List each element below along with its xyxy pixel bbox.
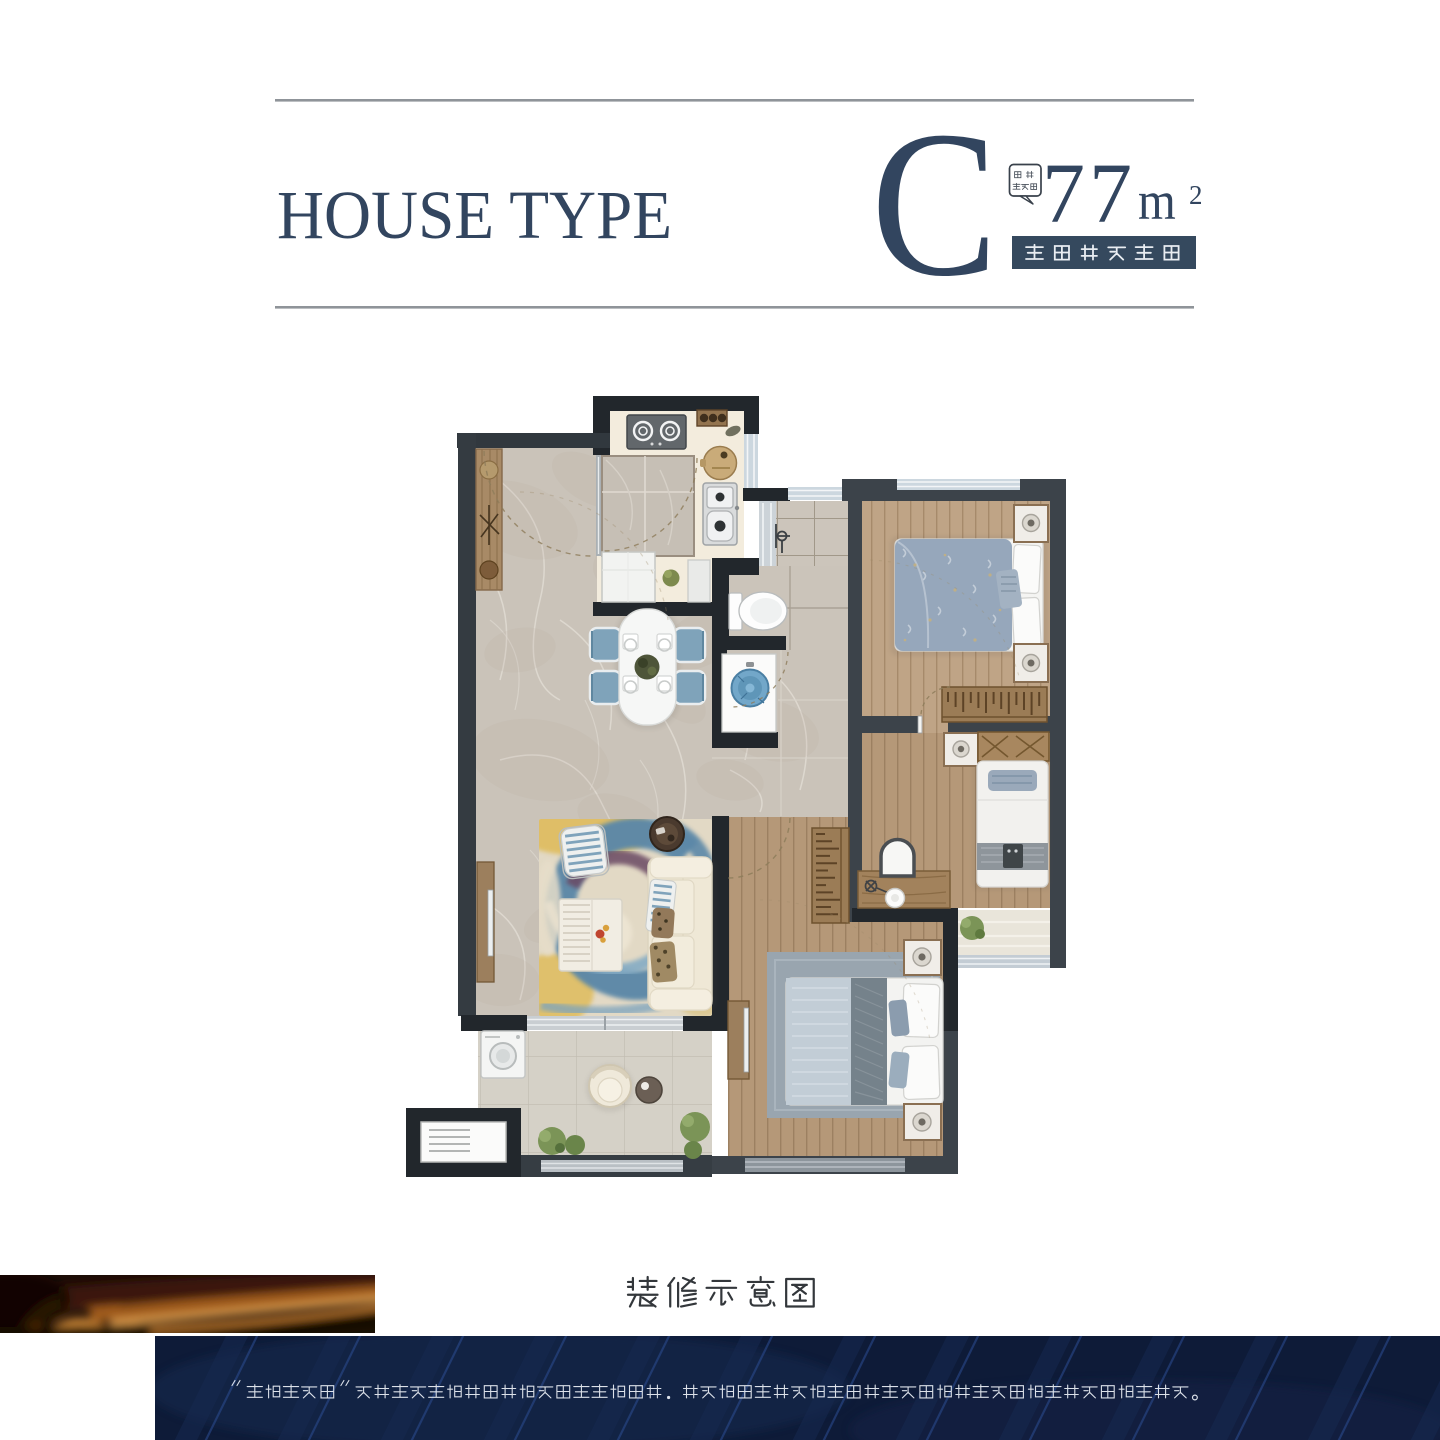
svg-text:2: 2	[1189, 180, 1203, 210]
svg-text:C: C	[871, 89, 998, 320]
svg-text:HOUSE TYPE: HOUSE TYPE	[277, 177, 672, 253]
svg-text:m: m	[1138, 172, 1176, 232]
svg-text:77: 77	[1042, 145, 1136, 241]
